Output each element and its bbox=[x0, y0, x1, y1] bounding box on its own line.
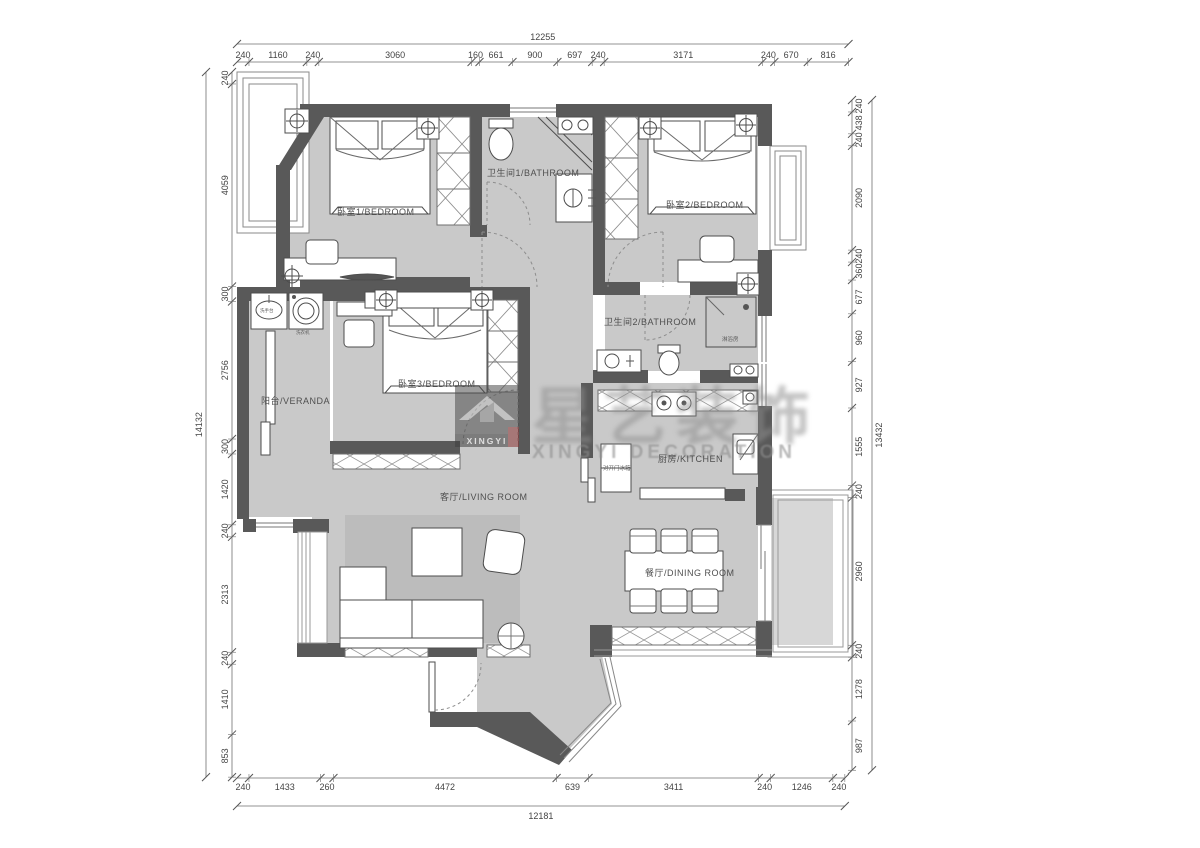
dim-label: 12255 bbox=[530, 32, 555, 42]
toilet-bathroom2 bbox=[658, 345, 680, 375]
wall-bathroom1-west bbox=[470, 117, 482, 225]
dim-label: 260 bbox=[319, 782, 334, 792]
dim-label: 987 bbox=[854, 738, 864, 753]
dim-label: 960 bbox=[854, 330, 864, 345]
dim-label: 2090 bbox=[854, 188, 864, 208]
dim-label: 1410 bbox=[220, 689, 230, 709]
dim-label: 1433 bbox=[275, 782, 295, 792]
label-dining: 餐厅/DINING ROOM bbox=[645, 567, 735, 578]
window-top-bathroom1 bbox=[510, 104, 556, 117]
bay-window-bedroom2 bbox=[770, 146, 806, 250]
label-kitchen: 厨房/KITCHEN bbox=[658, 453, 723, 464]
window-veranda-south bbox=[256, 519, 293, 532]
tv-cabinet-living bbox=[333, 454, 460, 469]
wall-veranda-sill-west bbox=[243, 519, 256, 532]
dim-label: 240 bbox=[854, 249, 864, 264]
dim-label: 900 bbox=[527, 50, 542, 60]
wall-bathroom2-north-a bbox=[593, 282, 640, 295]
armchair-living bbox=[482, 529, 525, 576]
dim-label: 927 bbox=[854, 377, 864, 392]
watermark-logo-text: XINGYI bbox=[467, 436, 508, 446]
dim-label: 438 bbox=[854, 115, 864, 130]
dim-label: 300 bbox=[220, 439, 230, 454]
column-symbol bbox=[735, 114, 757, 136]
dim-label: 661 bbox=[488, 50, 503, 60]
dim-label: 240 bbox=[854, 484, 864, 499]
kitchen-bar-counter bbox=[640, 488, 725, 499]
dim-label: 2756 bbox=[220, 360, 230, 380]
wall-bottom-left-a bbox=[297, 643, 345, 657]
laundry-unit-bathroom2 bbox=[730, 364, 758, 377]
wall-veranda-west bbox=[237, 287, 249, 519]
wall-dining-east-south bbox=[756, 621, 772, 657]
label-bathroom1: 卫生间1/BATHROOM bbox=[487, 167, 579, 178]
dim-label: 240 bbox=[854, 132, 864, 147]
dim-label: 677 bbox=[854, 289, 864, 304]
dim-label: 240 bbox=[591, 50, 606, 60]
coffee-table bbox=[412, 528, 462, 576]
label-basin: 洗手台 bbox=[260, 307, 274, 314]
dim-label: 240 bbox=[854, 644, 864, 659]
dim-label: 14132 bbox=[194, 412, 204, 437]
dim-label: 697 bbox=[567, 50, 582, 60]
label-bedroom2: 卧室2/BEDROOM bbox=[666, 199, 744, 210]
window-box-dining-south bbox=[594, 627, 772, 656]
dim-label: 240 bbox=[757, 782, 772, 792]
floor-plan-drawing: XINGYI 星艺装饰 XINGYI DECORATION 卧室1/BEDROO… bbox=[0, 0, 1200, 848]
dim-label: 1160 bbox=[268, 50, 287, 60]
label-living: 客厅/LIVING ROOM bbox=[440, 491, 528, 502]
wall-top-left bbox=[300, 104, 510, 117]
label-fridge: 对开门冰箱 bbox=[603, 464, 631, 472]
wardrobe-bedroom1 bbox=[437, 117, 470, 225]
dim-label: 1555 bbox=[854, 437, 864, 457]
dim-label: 2313 bbox=[220, 585, 230, 605]
dim-label: 853 bbox=[220, 748, 230, 763]
dim-label: 160 bbox=[468, 50, 483, 60]
window-living-west bbox=[298, 532, 327, 643]
column-symbol bbox=[375, 290, 397, 310]
wall-bedroom3-east bbox=[518, 300, 530, 454]
dim-label: 1420 bbox=[220, 479, 230, 499]
dim-label: 3171 bbox=[673, 50, 693, 60]
column-symbol bbox=[639, 117, 661, 139]
bed-bedroom1 bbox=[330, 117, 430, 214]
dim-label: 3411 bbox=[664, 782, 683, 792]
dim-label: 3060 bbox=[385, 50, 405, 60]
wall-bathroom1-south-stub bbox=[470, 225, 487, 237]
dim-label: 240 bbox=[831, 782, 846, 792]
brand-logo: XINGYI bbox=[455, 385, 519, 447]
dim-label: 300 bbox=[220, 286, 230, 301]
entry-door-leaf bbox=[429, 662, 435, 712]
dim-label: 360 bbox=[854, 264, 864, 279]
dim-label: 240 bbox=[305, 50, 320, 60]
dim-label: 4472 bbox=[435, 782, 455, 792]
wall-veranda-sill-east bbox=[293, 519, 329, 533]
plant-living bbox=[498, 623, 524, 649]
wardrobe-bedroom2 bbox=[605, 117, 638, 239]
balcony-floor bbox=[771, 498, 833, 645]
veranda-washer bbox=[289, 293, 323, 329]
label-shower-room: 淋浴房 bbox=[722, 335, 739, 343]
window-bathroom2-east bbox=[758, 316, 772, 362]
dim-label: 670 bbox=[784, 50, 799, 60]
label-bathroom2: 卫生间2/BATHROOM bbox=[604, 316, 696, 327]
dim-label: 12181 bbox=[528, 811, 553, 821]
dim-label: 240 bbox=[235, 782, 250, 792]
wall-kitchen-dining-stub bbox=[725, 489, 745, 501]
door-entry bbox=[435, 663, 481, 710]
dim-label: 1278 bbox=[854, 679, 864, 699]
dim-label: 2960 bbox=[854, 561, 864, 581]
column-symbol bbox=[417, 117, 439, 139]
dim-label: 240 bbox=[220, 651, 230, 666]
dim-label: 13432 bbox=[874, 423, 884, 448]
wall-dining-south-west bbox=[590, 625, 612, 657]
dim-label: 1246 bbox=[792, 782, 812, 792]
basin-counter-bathroom1 bbox=[558, 117, 593, 134]
dim-label: 240 bbox=[854, 98, 864, 113]
wardrobe-bedroom3 bbox=[488, 300, 518, 392]
dim-label: 4059 bbox=[220, 175, 230, 195]
wall-bedroom3-south bbox=[330, 441, 460, 454]
vanity-bathroom1 bbox=[556, 174, 596, 222]
dim-label: 240 bbox=[220, 523, 230, 538]
label-washer: 洗衣机 bbox=[296, 329, 310, 336]
floor-plan-canvas: XINGYI 星艺装饰 XINGYI DECORATION 卧室1/BEDROO… bbox=[0, 0, 1200, 848]
vanity-bathroom2 bbox=[597, 350, 641, 372]
column-symbol bbox=[285, 109, 309, 133]
label-bedroom1: 卧室1/BEDROOM bbox=[337, 206, 415, 217]
wall-bedroom2-west bbox=[593, 117, 605, 282]
column-symbol bbox=[471, 290, 493, 310]
dim-label: 240 bbox=[235, 50, 250, 60]
toilet-bathroom1 bbox=[489, 119, 513, 160]
label-bedroom3: 卧室3/BEDROOM bbox=[398, 378, 476, 389]
label-veranda: 阳台/VERANDA bbox=[261, 395, 330, 406]
wall-bathroom2-north-b bbox=[690, 282, 772, 295]
wall-east-top bbox=[758, 104, 772, 146]
dim-label: 816 bbox=[821, 50, 836, 60]
dim-label: 639 bbox=[565, 782, 580, 792]
dim-label: 240 bbox=[761, 50, 776, 60]
column-symbol bbox=[737, 273, 759, 295]
dim-label: 240 bbox=[220, 70, 230, 85]
sliding-door-dining-balcony bbox=[758, 525, 771, 621]
wall-dining-east-north bbox=[756, 487, 772, 525]
